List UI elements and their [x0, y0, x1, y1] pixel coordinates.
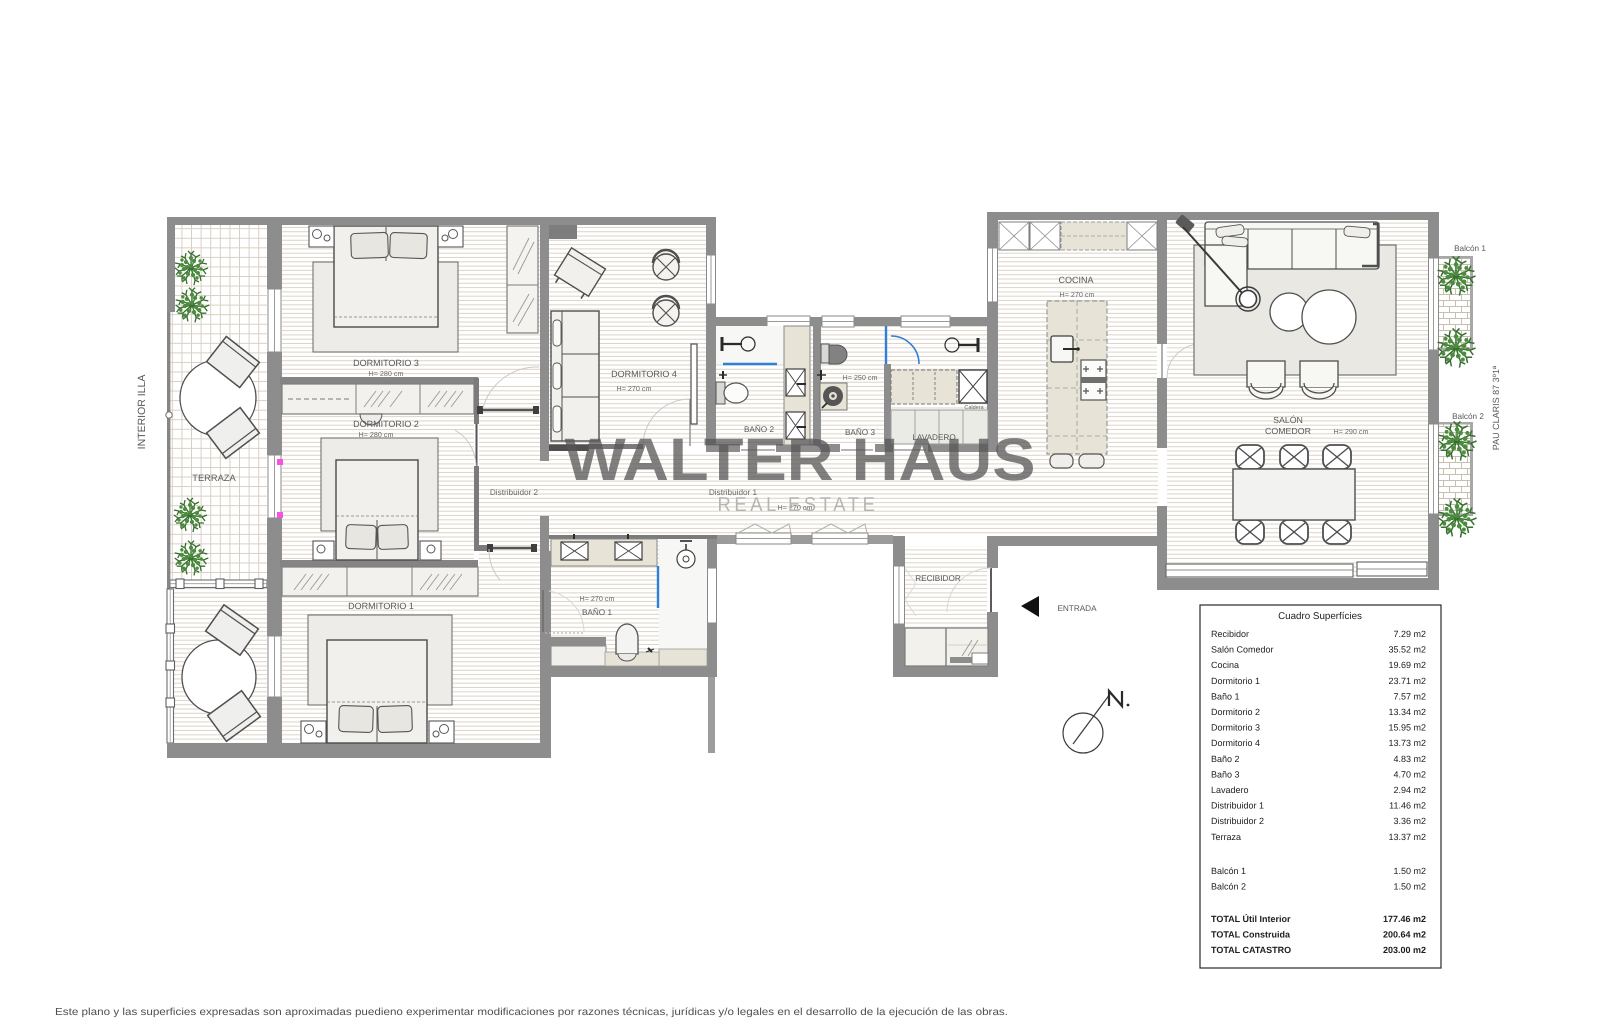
- svg-text:13.37 m2: 13.37 m2: [1388, 832, 1426, 842]
- svg-text:35.52 m2: 35.52 m2: [1388, 645, 1426, 655]
- svg-text:13.73 m2: 13.73 m2: [1388, 738, 1426, 748]
- svg-text:H= 280 cm: H= 280 cm: [369, 369, 404, 378]
- svg-text:Cuadro Superfícies: Cuadro Superfícies: [1278, 611, 1362, 622]
- svg-text:Distribuidor 1: Distribuidor 1: [1211, 801, 1264, 811]
- svg-text:4.70 m2: 4.70 m2: [1393, 769, 1426, 779]
- svg-text:REAL ESTATE: REAL ESTATE: [718, 494, 879, 516]
- svg-text:DORMITORIO 3: DORMITORIO 3: [353, 358, 419, 368]
- svg-text:COCINA: COCINA: [1058, 275, 1093, 285]
- svg-text:SALÓN: SALÓN: [1273, 415, 1303, 425]
- svg-text:Lavadero: Lavadero: [1211, 785, 1249, 795]
- svg-text:Dormitorio 1: Dormitorio 1: [1211, 676, 1260, 686]
- svg-text:TOTAL Útil Interior: TOTAL Útil Interior: [1211, 914, 1291, 924]
- svg-text:Distribuidor 2: Distribuidor 2: [1211, 816, 1264, 826]
- svg-text:INTERIOR ILLA: INTERIOR ILLA: [136, 375, 148, 450]
- svg-text:11.46 m2: 11.46 m2: [1389, 801, 1426, 811]
- svg-text:H= 270 cm: H= 270 cm: [617, 384, 652, 393]
- svg-text:Recibidor: Recibidor: [1211, 629, 1249, 639]
- svg-text:H= 250 cm: H= 250 cm: [843, 373, 878, 382]
- svg-text:Baño 3: Baño 3: [1211, 769, 1240, 779]
- svg-text:Distribuidor 2: Distribuidor 2: [490, 488, 539, 497]
- svg-text:Dormitorio 2: Dormitorio 2: [1211, 707, 1260, 717]
- svg-text:PAU CLARIS 87 3º1ª: PAU CLARIS 87 3º1ª: [1491, 365, 1501, 450]
- svg-text:Este plano y las superficies e: Este plano y las superficies expresadas …: [55, 1007, 1008, 1018]
- svg-text:3.36 m2: 3.36 m2: [1393, 816, 1426, 826]
- svg-text:H= 270 cm: H= 270 cm: [580, 594, 615, 603]
- svg-text:7.57 m2: 7.57 m2: [1393, 691, 1426, 701]
- svg-text:4.83 m2: 4.83 m2: [1393, 754, 1426, 764]
- svg-text:200.64 m2: 200.64 m2: [1383, 930, 1426, 940]
- svg-text:DORMITORIO 1: DORMITORIO 1: [348, 601, 414, 611]
- svg-text:ENTRADA: ENTRADA: [1057, 604, 1097, 613]
- svg-text:COMEDOR: COMEDOR: [1265, 426, 1311, 436]
- svg-text:RECIBIDOR: RECIBIDOR: [915, 574, 961, 583]
- svg-text:Dormitorio 4: Dormitorio 4: [1211, 738, 1260, 748]
- svg-text:Salón Comedor: Salón Comedor: [1211, 645, 1274, 655]
- svg-text:7.29 m2: 7.29 m2: [1393, 629, 1426, 639]
- svg-text:DORMITORIO 4: DORMITORIO 4: [611, 369, 677, 379]
- svg-text:177.46 m2: 177.46 m2: [1383, 914, 1426, 924]
- svg-text:Cocina: Cocina: [1211, 660, 1239, 670]
- svg-text:BAÑO 1: BAÑO 1: [582, 607, 612, 617]
- svg-text:19.69 m2: 19.69 m2: [1388, 660, 1426, 670]
- svg-text:H= 280 cm: H= 280 cm: [359, 430, 394, 439]
- svg-text:1.50 m2: 1.50 m2: [1393, 882, 1426, 892]
- svg-text:1.50 m2: 1.50 m2: [1393, 866, 1426, 876]
- svg-text:15.95 m2: 15.95 m2: [1388, 723, 1426, 733]
- svg-text:Dormitorio 3: Dormitorio 3: [1211, 723, 1260, 733]
- svg-text:TOTAL Construida: TOTAL Construida: [1211, 930, 1291, 940]
- svg-text:23.71 m2: 23.71 m2: [1388, 676, 1426, 686]
- svg-text:2.94 m2: 2.94 m2: [1393, 785, 1426, 795]
- svg-text:TOTAL CATASTRO: TOTAL CATASTRO: [1211, 945, 1291, 955]
- svg-text:H= 270 cm: H= 270 cm: [1060, 290, 1095, 299]
- svg-text:TERRAZA: TERRAZA: [192, 473, 236, 483]
- svg-text:Baño 1: Baño 1: [1211, 691, 1240, 701]
- svg-text:13.34 m2: 13.34 m2: [1388, 707, 1426, 717]
- svg-text:DORMITORIO 2: DORMITORIO 2: [353, 419, 419, 429]
- svg-text:H= 290 cm: H= 290 cm: [1334, 427, 1369, 436]
- svg-text:Terraza: Terraza: [1211, 832, 1241, 842]
- svg-text:Balcón 2: Balcón 2: [1452, 412, 1484, 421]
- svg-text:203.00 m2: 203.00 m2: [1383, 945, 1426, 955]
- svg-text:Balcón 1: Balcón 1: [1454, 244, 1486, 253]
- svg-text:Baño 2: Baño 2: [1211, 754, 1240, 764]
- svg-text:WALTER HAUS: WALTER HAUS: [565, 426, 1036, 493]
- svg-text:Balcón 2: Balcón 2: [1211, 882, 1246, 892]
- svg-text:Balcón 1: Balcón 1: [1211, 866, 1246, 876]
